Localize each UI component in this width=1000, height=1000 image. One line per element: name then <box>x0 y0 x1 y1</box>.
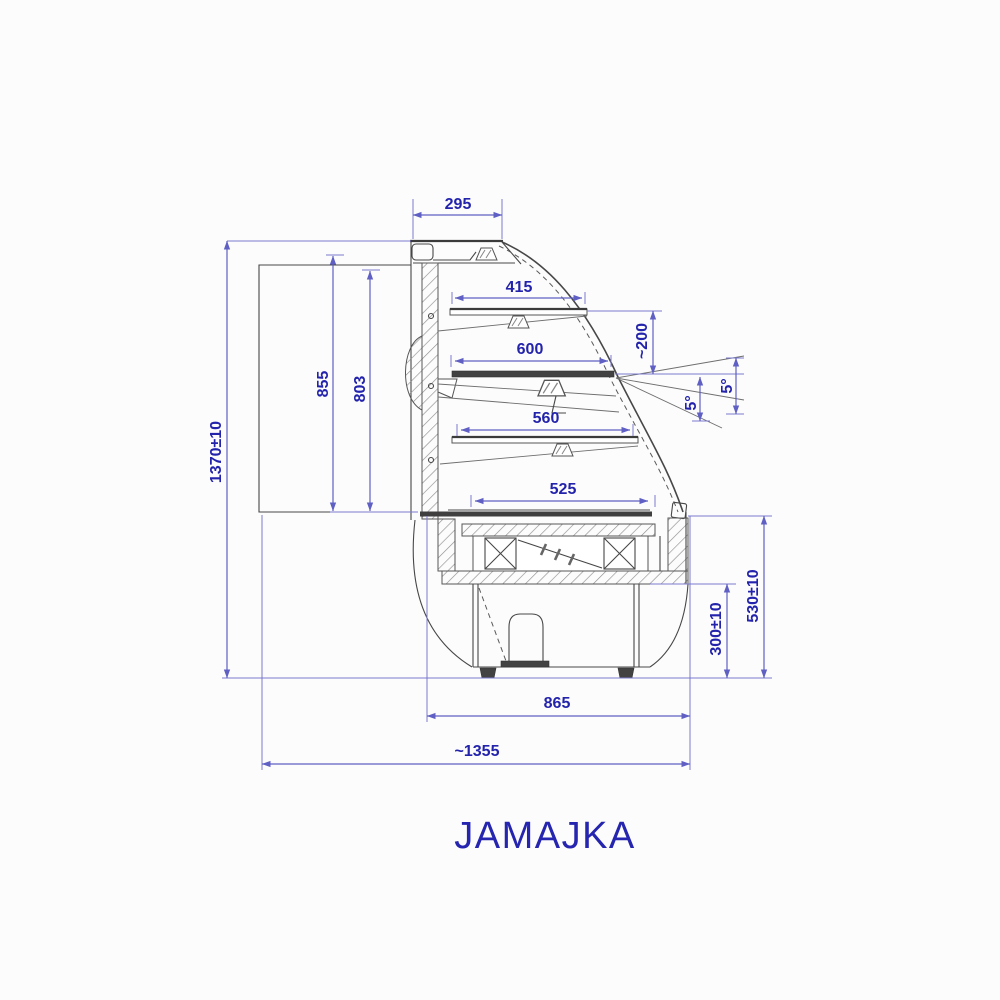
dim-shelf-gap-height: ~200 <box>634 323 651 359</box>
dim-shelf-top-depth: 415 <box>506 279 533 296</box>
shelf-middle-bracket <box>538 380 565 396</box>
dim-inner-height-front: 855 <box>315 371 332 398</box>
dim-shelf-tilt-angle-outer: 5° <box>719 378 736 393</box>
extension-lines <box>222 199 772 770</box>
service-door-swing <box>479 588 506 661</box>
dim-canopy-depth: 295 <box>445 196 472 213</box>
dim-shelf-tilt-angle-inner: 5° <box>683 395 700 410</box>
machine-compartment <box>473 584 650 667</box>
compressor <box>509 614 543 667</box>
refrigerated-well <box>438 518 688 584</box>
display-case-side-section: 295 415 ~200 600 5° 5° 560 525 855 803 1… <box>0 0 1000 1000</box>
dim-base-width: 865 <box>544 695 571 712</box>
shelf-lower <box>440 437 638 464</box>
dim-total-height: 1370±10 <box>208 421 225 483</box>
canopy-light-icon <box>476 248 497 260</box>
shelf-top-bracket <box>508 316 529 328</box>
compressor-base <box>501 661 549 667</box>
dimension-lines <box>227 215 764 764</box>
feet <box>480 668 634 678</box>
glass-end-cap <box>671 502 687 519</box>
model-title: JAMAJKA <box>454 815 636 857</box>
back-wall <box>405 263 438 519</box>
dim-machine-compartment-height: 300±10 <box>708 602 725 655</box>
display-deck <box>420 510 652 514</box>
shelf-top <box>438 309 587 331</box>
rear-panel-outline <box>259 241 415 520</box>
canopy <box>410 241 521 264</box>
back-wall-bulge <box>405 336 422 410</box>
dim-base-height: 530±10 <box>745 569 762 622</box>
case-geometry <box>259 241 744 678</box>
shelf-lower-bracket <box>552 444 573 456</box>
shelf-middle <box>438 356 744 428</box>
dim-shelf-lower-depth: 560 <box>533 410 560 427</box>
dim-deck-depth: 525 <box>550 481 577 498</box>
shelf-middle-wall-pocket <box>438 379 457 398</box>
dim-inner-height-back: 803 <box>352 376 369 403</box>
dim-shelf-middle-depth: 600 <box>517 341 544 358</box>
dim-total-depth: ~1355 <box>455 743 500 760</box>
technical-drawing-page: 295 415 ~200 600 5° 5° 560 525 855 803 1… <box>0 0 1000 1000</box>
